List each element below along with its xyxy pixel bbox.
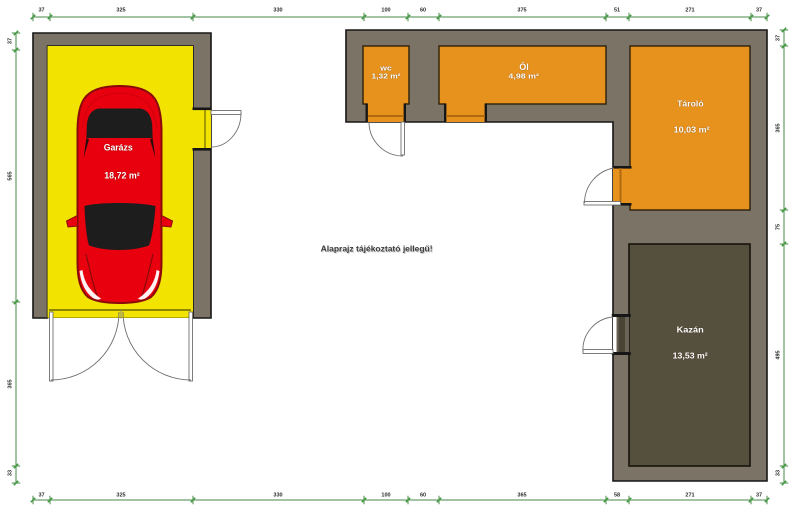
svg-text:13,53 m²: 13,53 m²	[673, 350, 708, 360]
svg-text:37: 37	[8, 38, 14, 44]
svg-text:Tároló: Tároló	[677, 99, 704, 109]
svg-text:330: 330	[273, 493, 282, 499]
svg-text:271: 271	[685, 8, 694, 14]
svg-text:365: 365	[517, 493, 526, 499]
svg-text:75: 75	[776, 224, 782, 230]
svg-text:60: 60	[420, 8, 426, 14]
svg-text:4,98 m²: 4,98 m²	[508, 72, 539, 81]
svg-text:565: 565	[8, 171, 14, 180]
svg-text:375: 375	[517, 8, 526, 14]
svg-text:495: 495	[776, 350, 782, 359]
svg-text:100: 100	[381, 493, 390, 499]
svg-text:60: 60	[420, 493, 426, 499]
svg-text:100: 100	[381, 8, 390, 14]
svg-text:58: 58	[614, 493, 620, 499]
svg-text:33: 33	[776, 470, 782, 476]
svg-text:330: 330	[273, 8, 282, 14]
svg-text:37: 37	[756, 8, 762, 14]
svg-text:325: 325	[116, 493, 125, 499]
svg-text:1,32 m²: 1,32 m²	[372, 72, 402, 81]
svg-text:18,72 m²: 18,72 m²	[104, 171, 140, 181]
svg-text:37: 37	[38, 8, 44, 14]
svg-text:33: 33	[8, 470, 14, 476]
svg-text:Garázs: Garázs	[104, 143, 133, 153]
svg-text:10,03 m²: 10,03 m²	[674, 125, 710, 135]
svg-text:37: 37	[756, 493, 762, 499]
svg-text:325: 325	[116, 8, 125, 14]
svg-text:271: 271	[685, 493, 694, 499]
svg-text:Alaprajz tájékoztató jellegű!: Alaprajz tájékoztató jellegű!	[321, 244, 433, 254]
svg-text:365: 365	[776, 123, 782, 132]
svg-text:37: 37	[776, 35, 782, 41]
svg-text:Kazán: Kazán	[677, 325, 704, 335]
svg-text:51: 51	[614, 8, 620, 14]
svg-text:Ól: Ól	[519, 61, 529, 72]
svg-text:365: 365	[8, 379, 14, 388]
svg-text:37: 37	[38, 493, 44, 499]
